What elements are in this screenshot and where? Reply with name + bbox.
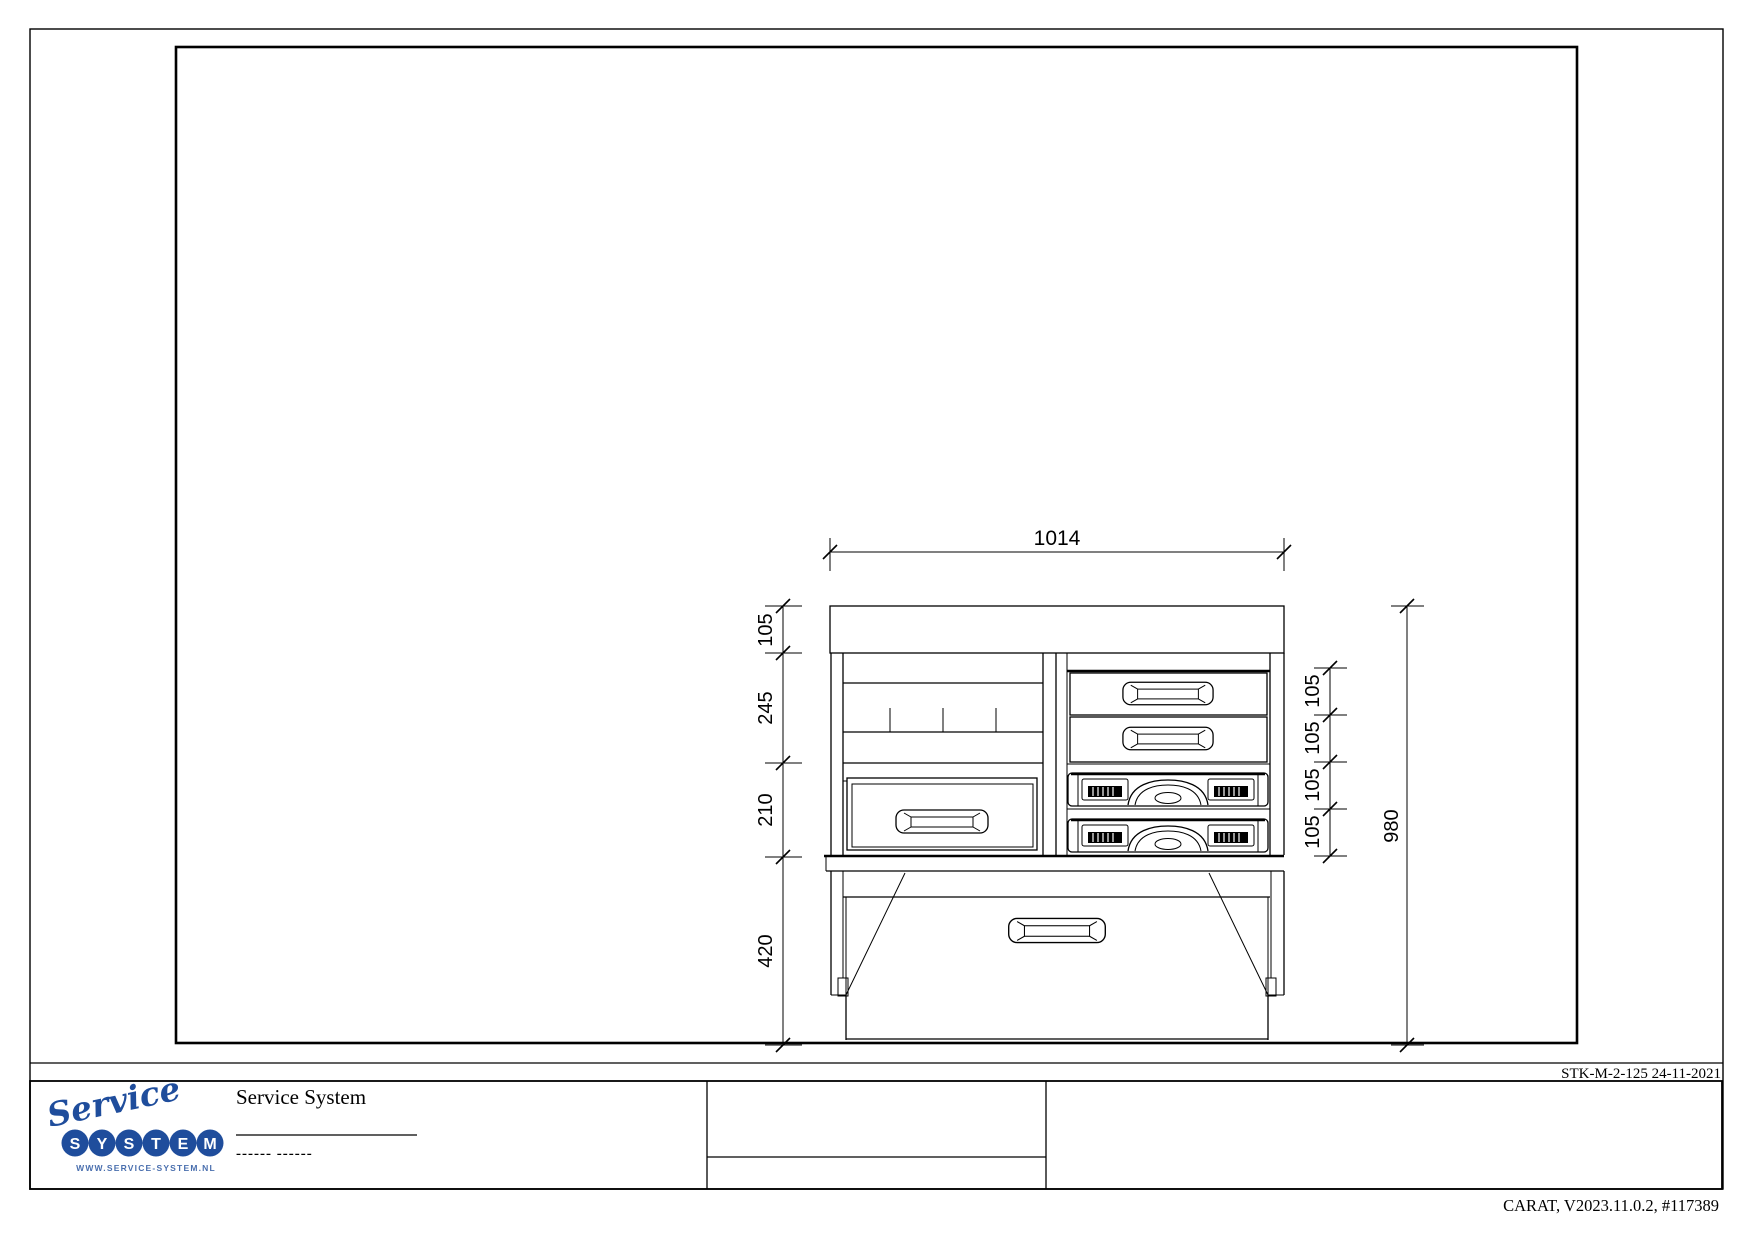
drawer-handle — [1123, 682, 1213, 705]
dim-label-right-3: 105 — [1302, 815, 1324, 848]
logo-letter: S — [70, 1136, 81, 1153]
logo-letter: E — [178, 1136, 189, 1153]
dim-label-left-0: 105 — [755, 613, 777, 646]
title-company-name: Service System — [236, 1085, 366, 1109]
cabinet-top-panel — [830, 606, 1284, 653]
dim-top-width: 1014 — [823, 527, 1291, 571]
logo-letter: M — [203, 1136, 216, 1153]
dim-label-left-3: 420 — [755, 934, 777, 967]
dim-label-top-width: 1014 — [1034, 527, 1081, 550]
dim-left-chain: 105 245 210 420 — [755, 599, 802, 1052]
revision-text: STK-M-2-125 24-11-2021 — [1561, 1066, 1721, 1082]
right-bay-drawer-1 — [1070, 673, 1267, 715]
dim-right-chain: 105 105 105 105 — [1302, 661, 1347, 863]
left-bay-drawer — [843, 778, 1037, 850]
dim-label-left-1: 245 — [755, 691, 777, 724]
dim-label-overall-height: 980 — [1381, 809, 1403, 842]
dim-label-right-1: 105 — [1302, 721, 1324, 754]
drawing-frame — [176, 47, 1577, 1043]
cabinet-elevation — [824, 606, 1284, 1040]
right-bay-drawer-2 — [1070, 717, 1267, 762]
title-block: Service S Y S T E M WWW.SERVICE-SYSTEM.N… — [30, 1069, 1722, 1189]
company-logo: Service S Y S T E M WWW.SERVICE-SYSTEM.N… — [44, 1069, 224, 1173]
logo-website-text: WWW.SERVICE-SYSTEM.NL — [76, 1163, 216, 1173]
drawer-handle — [896, 810, 988, 833]
dim-label-right-2: 105 — [1302, 768, 1324, 801]
base-unit — [824, 856, 1284, 1040]
storage-case-2 — [1068, 819, 1268, 852]
base-drawer — [843, 897, 1270, 1039]
footer-version-text: CARAT, V2023.11.0.2, #117389 — [1503, 1196, 1719, 1215]
drawer-handle — [1123, 727, 1213, 750]
drawer-handle — [1009, 918, 1106, 942]
revision-strip: STK-M-2-125 24-11-2021 — [30, 1063, 1723, 1082]
logo-letter: S — [124, 1136, 135, 1153]
wheel-arch-diagonal-right — [1209, 873, 1268, 995]
drawing-sheet: 1014 105 245 210 420 105 105 105 105 — [0, 0, 1754, 1240]
dim-overall-height: 980 — [1381, 599, 1424, 1052]
right-bay — [1067, 653, 1270, 855]
page-border — [30, 29, 1723, 1189]
title-placeholder-dashes: ------ ------ — [236, 1146, 313, 1162]
logo-circles: S Y S T E M — [62, 1130, 224, 1157]
logo-letter: T — [151, 1136, 161, 1153]
left-bay-shelves — [843, 683, 1043, 763]
wheel-arch-diagonal-left — [846, 873, 905, 995]
dim-label-left-2: 210 — [755, 793, 777, 826]
logo-letter: Y — [97, 1136, 108, 1153]
dim-label-right-0: 105 — [1302, 674, 1324, 707]
storage-case-1 — [1068, 773, 1268, 806]
logo-script-text: Service — [44, 1069, 184, 1135]
